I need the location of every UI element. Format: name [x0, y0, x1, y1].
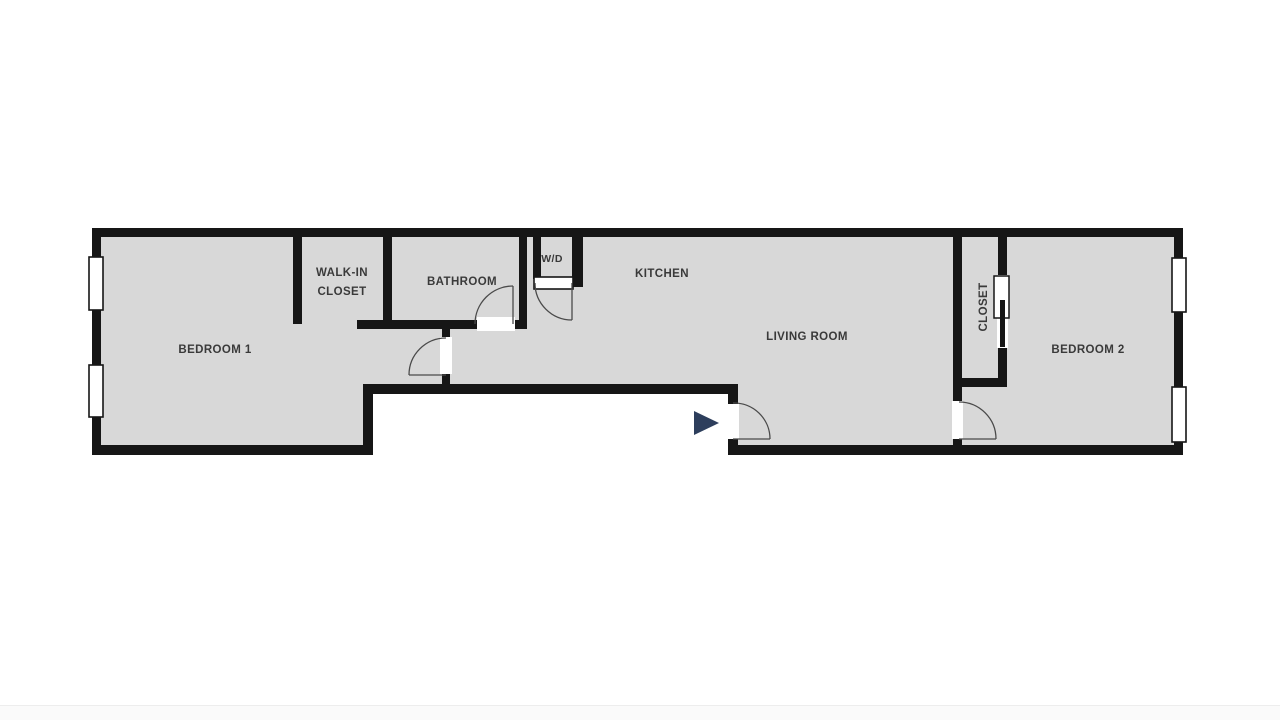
room-label-closet: CLOSET — [978, 282, 990, 331]
wall-outer-top — [92, 228, 1183, 237]
bedroom2-window-lower — [1172, 387, 1186, 442]
wall-notch-bottom — [363, 384, 738, 394]
wall-bathroom-right — [519, 228, 527, 328]
bedroom2-window-upper — [1172, 258, 1186, 312]
floor-plan-diagram: BEDROOM 1 WALK-IN CLOSET BATHROOM W/D KI… — [0, 0, 1280, 720]
floor-plan-screenshot: BEDROOM 1 WALK-IN CLOSET BATHROOM W/D KI… — [0, 0, 1280, 720]
bedroom1-window-lower — [89, 365, 103, 417]
entry-door-opening — [727, 404, 739, 439]
room-label-walkin-line2: CLOSET — [317, 286, 366, 298]
entrance-arrow-icon — [694, 411, 719, 435]
apartment-footprint — [94, 230, 1181, 453]
wall-bedroom2-door-top-stub — [953, 387, 962, 401]
room-label-kitchen: KITCHEN — [635, 268, 689, 280]
wall-bedroom2-door-bottom-stub — [953, 439, 962, 455]
window-bottom-strip — [0, 705, 1280, 720]
bedroom2-door-opening — [952, 401, 963, 439]
room-label-bedroom1: BEDROOM 1 — [178, 344, 251, 356]
wall-closet-right-bottom — [998, 348, 1007, 387]
wall-bedroom1-door-top-stub — [442, 324, 450, 337]
room-label-wd: W/D — [541, 253, 563, 265]
wall-notch-left — [363, 384, 373, 455]
wall-wd-left — [533, 228, 541, 279]
wall-closet-right-top — [998, 228, 1007, 275]
wall-entry-top-stub — [728, 384, 738, 404]
wall-closet-left — [953, 228, 962, 387]
bathroom-door-opening — [477, 317, 515, 331]
wall-bedroom1-bottom — [92, 445, 373, 455]
bedroom1-window-upper — [89, 257, 103, 310]
wall-bedroom1-walkin-divider — [293, 228, 302, 324]
room-label-bathroom: BATHROOM — [427, 276, 497, 288]
room-label-bedroom2: BEDROOM 2 — [1051, 344, 1124, 356]
floor-area — [94, 230, 1181, 453]
wall-walkin-bathroom-divider — [383, 228, 392, 328]
wall-bedroom1-door-bottom-stub — [442, 374, 450, 394]
bedroom1-door-opening — [440, 337, 452, 374]
closet-slider-track — [1000, 300, 1005, 347]
room-label-living-room: LIVING ROOM — [766, 331, 848, 343]
wd-door-opening — [534, 277, 573, 289]
room-label-walkin-line1: WALK-IN — [316, 267, 368, 279]
